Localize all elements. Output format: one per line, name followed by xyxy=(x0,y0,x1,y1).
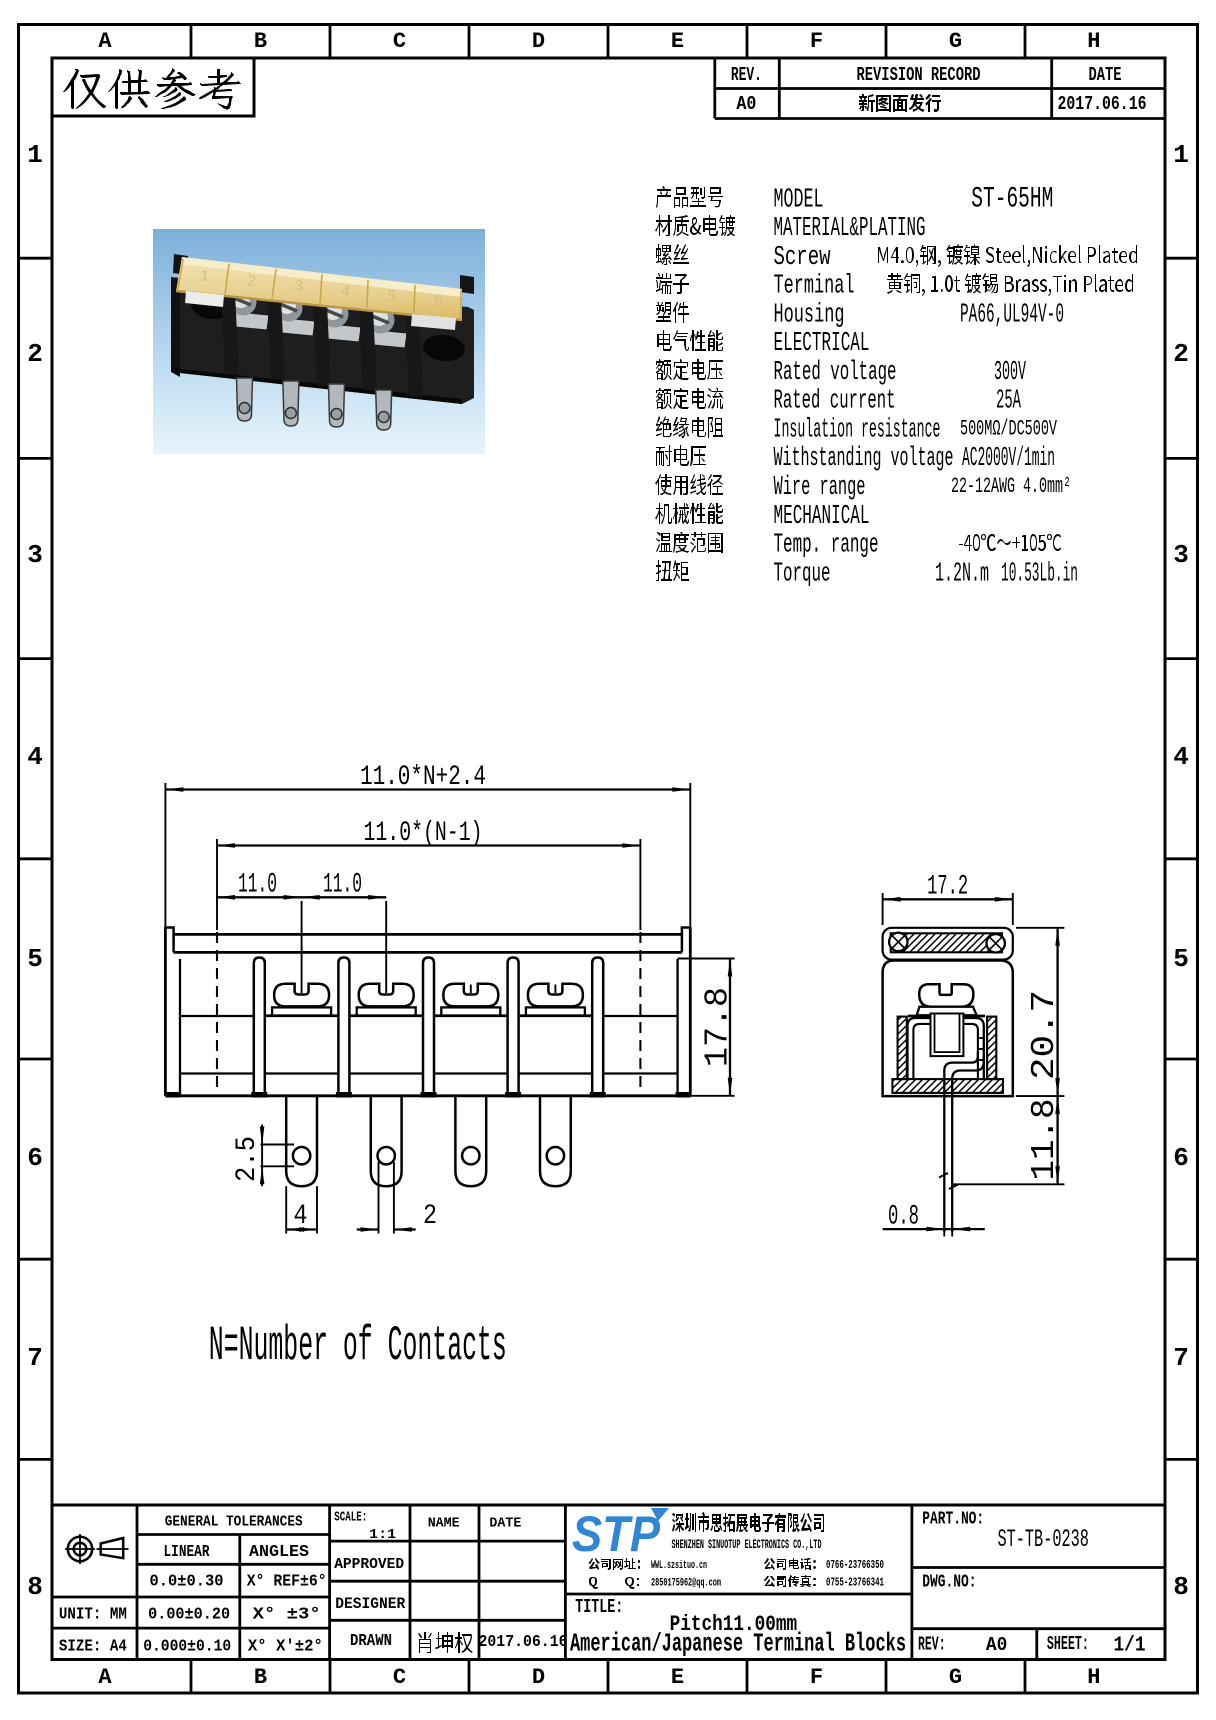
svg-text:MATERIAL&PLATING: MATERIAL&PLATING xyxy=(774,214,926,244)
svg-text:0766-23766350: 0766-23766350 xyxy=(826,1559,884,1572)
svg-text:4: 4 xyxy=(294,1201,308,1232)
svg-text:5: 5 xyxy=(1173,944,1189,974)
svg-text:1: 1 xyxy=(27,140,43,170)
svg-text:11.0*N+2.4: 11.0*N+2.4 xyxy=(360,762,486,793)
svg-text:11.8: 11.8 xyxy=(1026,1099,1063,1181)
svg-text:NAME: NAME xyxy=(428,1516,460,1532)
svg-text:DRAWN: DRAWN xyxy=(350,1631,392,1650)
svg-text:F: F xyxy=(810,1665,823,1690)
svg-text:Temp. range: Temp. range xyxy=(774,531,879,561)
svg-text:REV.: REV. xyxy=(731,64,762,86)
svg-text:C: C xyxy=(393,1665,406,1690)
svg-text:3: 3 xyxy=(1173,540,1189,570)
svg-text:7: 7 xyxy=(1173,1343,1189,1373)
svg-text:4: 4 xyxy=(27,742,43,772)
svg-text:0.00±0.20: 0.00±0.20 xyxy=(148,1606,230,1625)
svg-text:American/Japanese Terminal Blo: American/Japanese Terminal Blocks xyxy=(570,1629,906,1659)
svg-text:0.0±0.30: 0.0±0.30 xyxy=(150,1573,224,1592)
svg-text:ST-TB-0238: ST-TB-0238 xyxy=(997,1525,1089,1554)
svg-text:0.000±0.10: 0.000±0.10 xyxy=(143,1638,231,1657)
svg-text:Insulation resistance: Insulation resistance xyxy=(774,415,941,445)
svg-text:17.8: 17.8 xyxy=(700,987,737,1067)
svg-text:Screw: Screw xyxy=(774,243,831,273)
svg-text:11.0: 11.0 xyxy=(323,870,362,901)
svg-text:X° REF±6°: X° REF±6° xyxy=(247,1573,327,1592)
svg-text:2: 2 xyxy=(1173,339,1189,369)
svg-text:PART.NO:: PART.NO: xyxy=(922,1510,984,1530)
svg-text:SIZE: A4: SIZE: A4 xyxy=(59,1638,127,1657)
svg-text:REVISION RECORD: REVISION RECORD xyxy=(857,64,981,86)
svg-text:MECHANICAL: MECHANICAL xyxy=(774,502,870,532)
svg-text:1:1: 1:1 xyxy=(369,1527,396,1543)
svg-text:Terminal: Terminal xyxy=(774,272,855,302)
svg-text:G: G xyxy=(949,1665,962,1690)
svg-text:17.2: 17.2 xyxy=(927,872,968,903)
svg-text:6: 6 xyxy=(27,1143,43,1173)
svg-text:N=Number of Contacts: N=Number of Contacts xyxy=(209,1318,507,1374)
svg-text:ANGLES: ANGLES xyxy=(249,1543,309,1562)
svg-text:A: A xyxy=(98,1665,112,1690)
svg-text:A0: A0 xyxy=(736,93,756,115)
svg-text:6: 6 xyxy=(1173,1143,1189,1173)
svg-text:TITLE:: TITLE: xyxy=(575,1596,623,1618)
svg-text:DATE: DATE xyxy=(1089,64,1122,86)
svg-text:ELECTRICAL: ELECTRICAL xyxy=(774,329,870,359)
svg-text:2: 2 xyxy=(27,339,43,369)
svg-text:1/1: 1/1 xyxy=(1114,1635,1146,1658)
svg-text:ST-65HM: ST-65HM xyxy=(971,183,1053,217)
svg-text:APPROVED: APPROVED xyxy=(334,1556,404,1573)
svg-text:A0: A0 xyxy=(986,1634,1007,1656)
svg-text:3: 3 xyxy=(27,540,43,570)
svg-text:UNIT: MM: UNIT: MM xyxy=(59,1606,127,1625)
svg-text:20.7: 20.7 xyxy=(1026,990,1063,1080)
svg-text:WWL.szsituo.cn: WWL.szsituo.cn xyxy=(651,1560,707,1572)
svg-text:2.5: 2.5 xyxy=(232,1136,263,1182)
svg-text:H: H xyxy=(1087,29,1100,54)
svg-text:SCALE:: SCALE: xyxy=(334,1510,367,1526)
svg-text:Torque: Torque xyxy=(774,559,831,589)
svg-text:D: D xyxy=(532,29,545,54)
svg-text:B: B xyxy=(254,29,267,54)
svg-text:PA66,UL94V-0: PA66,UL94V-0 xyxy=(960,300,1064,330)
svg-text:X° ±3°: X° ±3° xyxy=(253,1606,321,1625)
svg-text:25A: 25A xyxy=(996,387,1021,417)
svg-text:8: 8 xyxy=(1173,1572,1189,1602)
svg-text:GENERAL TOLERANCES: GENERAL TOLERANCES xyxy=(165,1514,303,1531)
svg-text:2: 2 xyxy=(423,1201,437,1232)
svg-text:2850175962@qq.com: 2850175962@qq.com xyxy=(651,1578,721,1590)
svg-text:AC2000V/1min: AC2000V/1min xyxy=(962,444,1055,474)
svg-text:D: D xyxy=(532,1665,545,1690)
svg-text:5: 5 xyxy=(27,944,43,974)
svg-text:MODEL: MODEL xyxy=(774,185,824,215)
svg-text:22-12AWG 4.0mm²: 22-12AWG 4.0mm² xyxy=(951,474,1071,499)
svg-text:E: E xyxy=(671,29,684,54)
svg-text:LINEAR: LINEAR xyxy=(164,1543,211,1562)
svg-text:4: 4 xyxy=(1173,742,1189,772)
svg-text:Withstanding voltage: Withstanding voltage xyxy=(774,444,954,474)
svg-text:Rated current: Rated current xyxy=(774,387,896,417)
svg-text:F: F xyxy=(810,29,823,54)
svg-text:7: 7 xyxy=(27,1343,43,1373)
svg-text:G: G xyxy=(949,29,962,54)
svg-text:0755-23766341: 0755-23766341 xyxy=(826,1577,884,1590)
svg-text:300V: 300V xyxy=(994,358,1026,388)
svg-text:DWG.NO:: DWG.NO: xyxy=(922,1573,976,1593)
svg-text:C: C xyxy=(393,29,406,54)
svg-text:B: B xyxy=(254,1665,267,1690)
svg-text:0.8: 0.8 xyxy=(888,1202,919,1233)
svg-text:A: A xyxy=(98,29,112,54)
svg-text:11.0*(N-1): 11.0*(N-1) xyxy=(364,818,483,849)
svg-text:SHENZHEN SINUOTUP ELECTRONICS: SHENZHEN SINUOTUP ELECTRONICS CO.,LTD xyxy=(672,1538,822,1552)
svg-text:2017.06.16: 2017.06.16 xyxy=(479,1632,568,1651)
svg-text:2017.06.16: 2017.06.16 xyxy=(1058,93,1147,115)
svg-text:Housing: Housing xyxy=(774,300,845,330)
svg-text:Rated voltage: Rated voltage xyxy=(774,358,897,388)
svg-text:500MΩ/DC500V: 500MΩ/DC500V xyxy=(960,417,1057,442)
svg-text:STP: STP xyxy=(572,1506,661,1562)
svg-text:H: H xyxy=(1087,1665,1100,1690)
svg-text:1.2N.m: 1.2N.m xyxy=(935,559,989,589)
svg-text:X° X'±2°: X° X'±2° xyxy=(248,1638,323,1657)
svg-text:Wire range: Wire range xyxy=(774,473,866,503)
svg-text:SHEET:: SHEET: xyxy=(1047,1633,1089,1655)
svg-text:10.53Lb.in: 10.53Lb.in xyxy=(1001,559,1078,589)
svg-text:DATE: DATE xyxy=(489,1516,521,1532)
svg-text:11.0: 11.0 xyxy=(238,870,277,901)
svg-text:REV:: REV: xyxy=(918,1634,946,1656)
svg-text:8: 8 xyxy=(27,1572,43,1602)
svg-text:E: E xyxy=(671,1665,684,1690)
svg-text:DESIGNER: DESIGNER xyxy=(335,1595,405,1613)
svg-text:1: 1 xyxy=(1173,140,1189,170)
